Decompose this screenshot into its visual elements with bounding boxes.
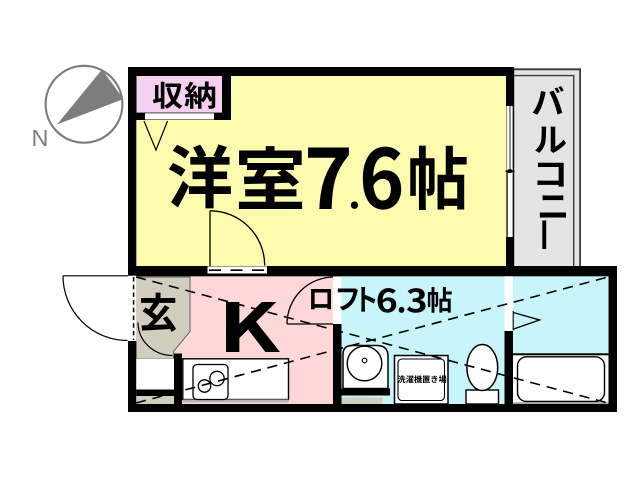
svg-text:N: N <box>32 125 49 151</box>
